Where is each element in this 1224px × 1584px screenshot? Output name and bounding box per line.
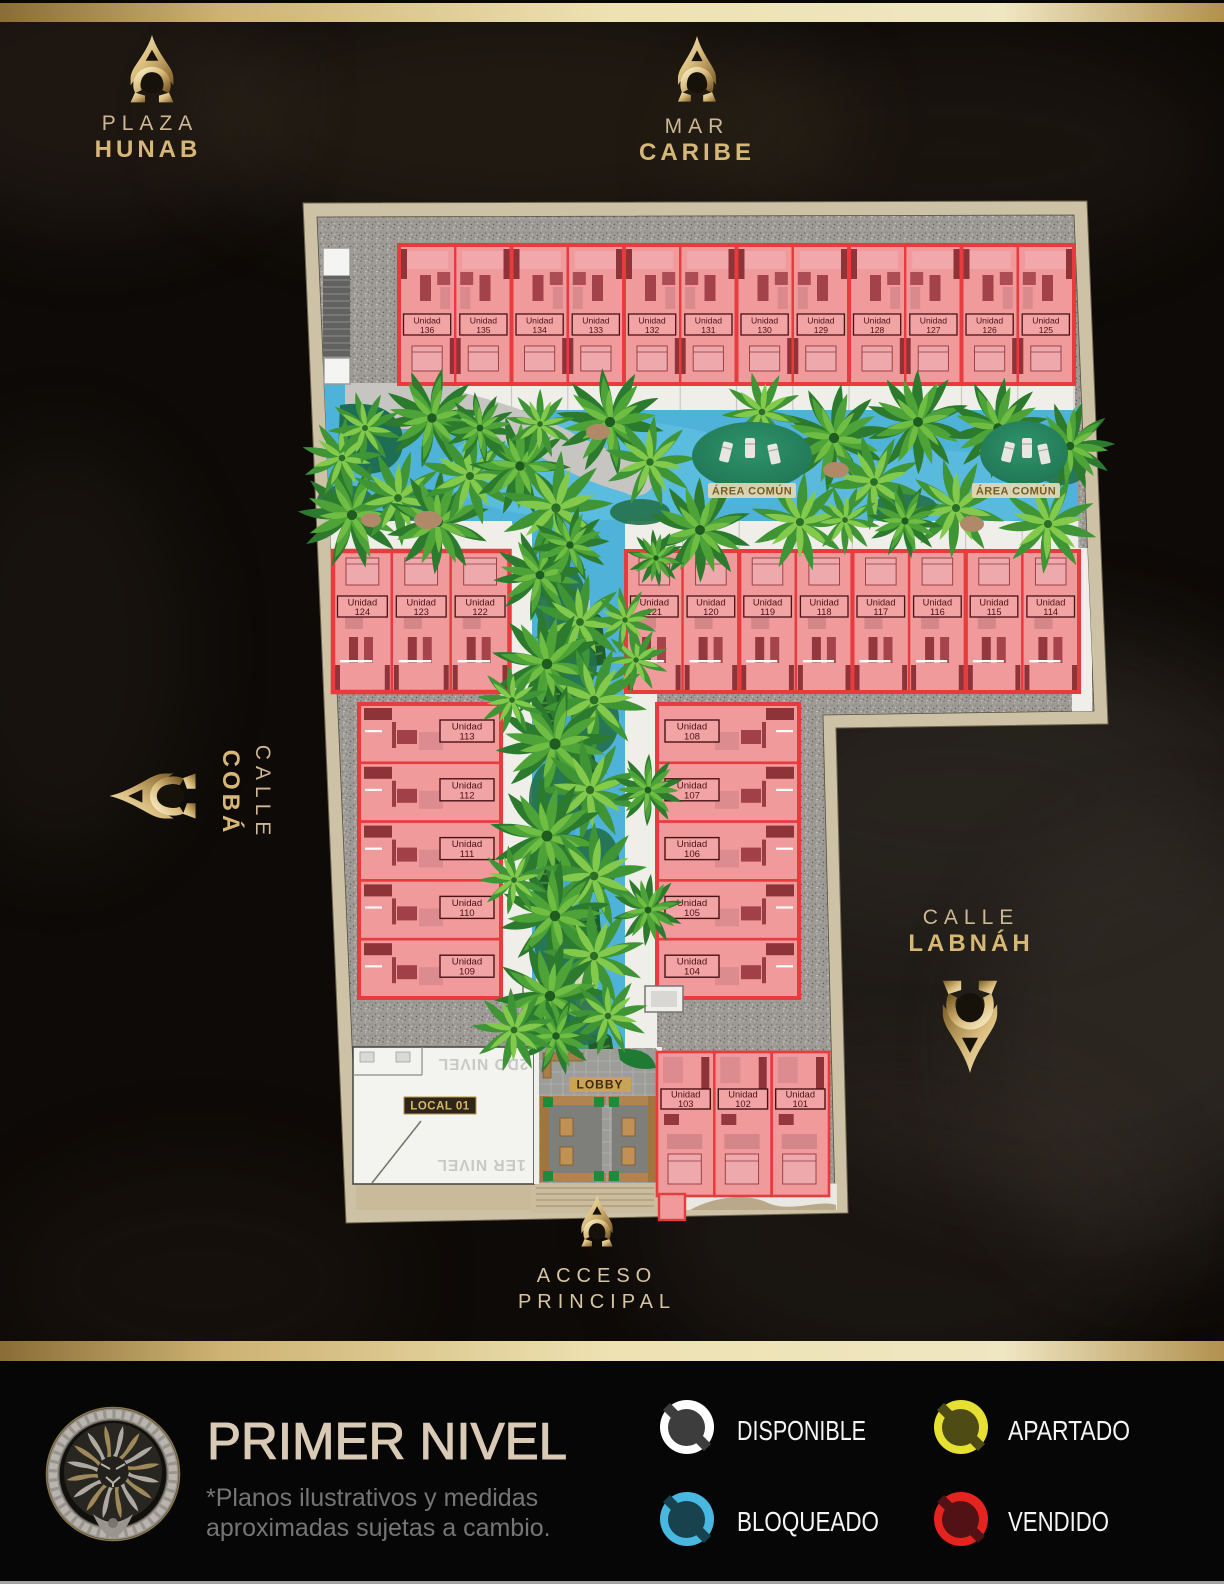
svg-text:116: 116 [930,607,945,617]
svg-text:108: 108 [684,732,700,743]
svg-text:125: 125 [1039,325,1054,335]
svg-text:102: 102 [735,1099,751,1109]
svg-text:MAR: MAR [665,115,730,138]
svg-text:ÁREA COMÚN: ÁREA COMÚN [976,485,1056,498]
svg-text:104: 104 [684,967,701,978]
svg-text:115: 115 [987,607,1002,617]
svg-text:117: 117 [873,607,888,617]
svg-text:APARTADO: APARTADO [1008,1415,1130,1446]
svg-text:ÁREA COMÚN: ÁREA COMÚN [712,485,792,498]
svg-text:Unidad: Unidad [1036,598,1065,608]
svg-text:LABNÁH: LABNÁH [908,929,1033,957]
svg-text:112: 112 [459,790,474,801]
svg-text:CALLE: CALLE [251,745,274,842]
svg-text:Unidad: Unidad [696,598,725,608]
svg-text:2DO NIVEL: 2DO NIVEL [438,1055,529,1072]
svg-text:Unidad: Unidad [470,316,497,326]
svg-text:PLAZA: PLAZA [102,112,199,135]
svg-text:Unidad: Unidad [923,598,952,608]
svg-text:CALLE: CALLE [923,906,1020,929]
svg-text:Unidad: Unidad [979,598,1008,608]
svg-text:Unidad: Unidad [413,316,440,326]
svg-text:Unidad: Unidad [753,598,782,608]
svg-text:135: 135 [476,325,491,335]
svg-text:128: 128 [870,325,885,335]
svg-text:114: 114 [1043,607,1058,617]
svg-text:CARIBE: CARIBE [639,139,755,166]
svg-text:110: 110 [459,908,474,919]
svg-text:101: 101 [793,1099,809,1109]
svg-text:103: 103 [678,1099,694,1109]
svg-text:Unidad: Unidad [638,316,665,326]
svg-text:Unidad: Unidad [1032,316,1059,326]
svg-text:Unidad: Unidad [640,598,669,608]
svg-text:Unidad: Unidad [809,598,838,608]
svg-text:Unidad: Unidad [526,316,553,326]
svg-text:LOCAL 01: LOCAL 01 [410,1101,469,1113]
svg-text:129: 129 [814,325,829,335]
svg-text:VENDIDO: VENDIDO [1008,1506,1109,1537]
svg-text:Unidad: Unidad [348,598,377,608]
svg-text:133: 133 [589,325,604,335]
svg-text:111: 111 [460,849,475,860]
svg-text:119: 119 [760,607,775,617]
svg-text:Unidad: Unidad [671,1090,700,1100]
svg-text:DISPONIBLE: DISPONIBLE [737,1415,866,1446]
svg-text:BLOQUEADO: BLOQUEADO [737,1506,879,1537]
svg-text:109: 109 [459,967,475,978]
svg-text:Unidad: Unidad [728,1090,757,1100]
svg-text:PRINCIPAL: PRINCIPAL [518,1291,676,1313]
svg-text:PRIMER NIVEL: PRIMER NIVEL [207,1413,567,1471]
svg-text:HUNAB: HUNAB [95,136,202,163]
svg-text:118: 118 [817,607,832,617]
svg-text:127: 127 [926,325,941,335]
svg-text:Unidad: Unidad [920,316,947,326]
svg-text:132: 132 [645,325,660,335]
svg-text:Unidad: Unidad [406,598,435,608]
svg-text:ACCESO: ACCESO [537,1265,657,1287]
svg-text:123: 123 [413,607,429,617]
svg-text:Unidad: Unidad [863,316,890,326]
svg-text:aproximadas sujetas a cambio.: aproximadas sujetas a cambio. [206,1514,551,1542]
svg-text:Unidad: Unidad [465,598,494,608]
svg-text:130: 130 [757,325,772,335]
svg-text:LOBBY: LOBBY [577,1078,624,1092]
svg-text:*Planos ilustrativos y medidas: *Planos ilustrativos y medidas [206,1484,538,1512]
svg-text:Unidad: Unidad [695,316,722,326]
svg-text:Unidad: Unidad [582,316,609,326]
svg-text:Unidad: Unidad [807,316,834,326]
svg-text:Unidad: Unidad [976,316,1003,326]
svg-text:Unidad: Unidad [866,598,895,608]
svg-text:Unidad: Unidad [751,316,778,326]
svg-text:120: 120 [703,607,719,617]
svg-text:107: 107 [684,790,700,801]
svg-text:124: 124 [355,607,371,617]
svg-text:131: 131 [701,325,716,335]
svg-text:122: 122 [472,607,488,617]
svg-text:COBÁ: COBÁ [217,750,245,837]
svg-text:126: 126 [982,325,997,335]
svg-text:106: 106 [684,849,700,860]
svg-text:134: 134 [532,325,547,335]
svg-text:1ER NIVEL: 1ER NIVEL [436,1156,525,1173]
svg-text:113: 113 [459,732,474,743]
svg-text:136: 136 [420,325,435,335]
svg-text:105: 105 [684,908,700,919]
svg-text:Unidad: Unidad [786,1090,815,1100]
